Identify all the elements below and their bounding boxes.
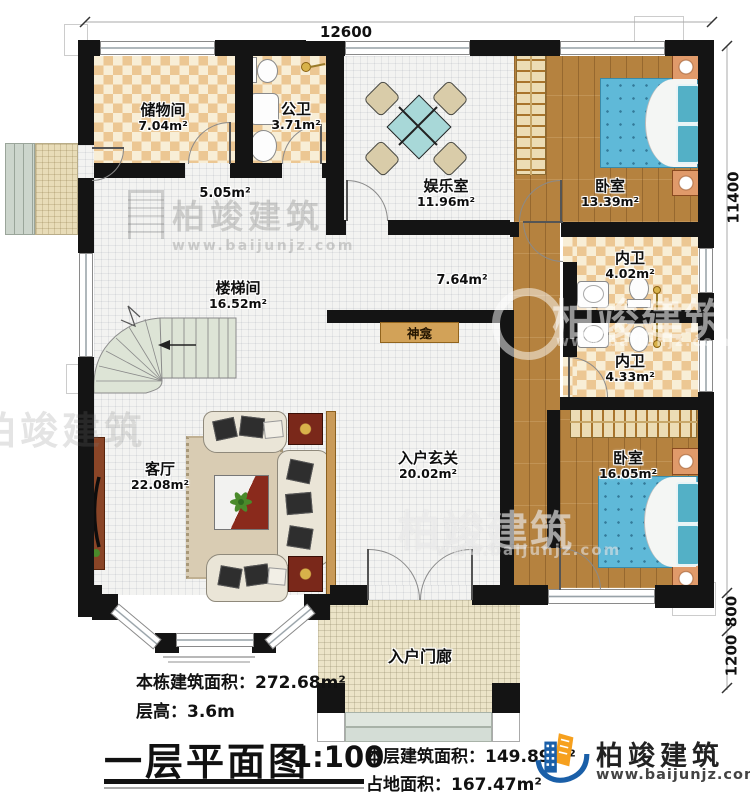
window bbox=[79, 253, 93, 357]
window bbox=[699, 248, 713, 293]
wall-segment bbox=[561, 222, 714, 237]
door-leaf bbox=[568, 357, 570, 397]
wall-segment bbox=[500, 310, 514, 590]
wall-segment bbox=[510, 222, 519, 237]
room-label-entry-porch: 入户门廊 bbox=[388, 648, 452, 666]
sink bbox=[583, 285, 604, 303]
area-label-hallway-mid: 7.64m² bbox=[436, 274, 487, 289]
floor-plan-page: { "plan": { "rooms": { "storage": {"name… bbox=[0, 0, 750, 799]
divider-screen bbox=[326, 411, 336, 595]
nightstand bbox=[672, 54, 700, 80]
sink-counter bbox=[577, 281, 609, 308]
cushion bbox=[212, 417, 238, 441]
sofa-bottom bbox=[206, 554, 288, 602]
plan-title: 一层平面图 bbox=[104, 731, 309, 786]
building-total-area-text: 本栋建筑面积：272.68m² bbox=[136, 668, 346, 693]
wall-segment bbox=[326, 56, 344, 235]
wall-segment bbox=[330, 585, 368, 605]
room-label-ensuite-bottom: 内卫 4.33m² bbox=[605, 353, 654, 384]
wall-segment bbox=[78, 40, 94, 145]
wardrobe-rail bbox=[570, 421, 697, 423]
entry-door-leaf bbox=[367, 549, 369, 600]
brand-url: www.baijunjz.com bbox=[596, 767, 750, 783]
cushion bbox=[267, 567, 286, 586]
wall-segment bbox=[563, 262, 577, 357]
sink bbox=[250, 130, 277, 162]
wardrobe-rail bbox=[530, 49, 532, 175]
room-label-bedroom-top: 卧室 13.39m² bbox=[581, 178, 639, 209]
wall-segment bbox=[547, 410, 560, 548]
bay-window-left bbox=[110, 604, 161, 650]
floor-door-threshold bbox=[563, 237, 577, 262]
nightstand bbox=[672, 170, 700, 196]
wall-segment bbox=[388, 220, 510, 235]
window bbox=[548, 589, 655, 604]
door-leaf bbox=[229, 122, 231, 164]
entry-door-leaf bbox=[471, 549, 473, 600]
toilet-bowl bbox=[629, 326, 649, 352]
sink-counter bbox=[577, 320, 609, 348]
wall-segment bbox=[215, 40, 345, 56]
wall-segment bbox=[330, 220, 346, 235]
cushion bbox=[263, 420, 284, 439]
room-label-public-bath: 公卫 3.71m² bbox=[271, 101, 320, 132]
cushion bbox=[285, 492, 313, 515]
wall-segment bbox=[78, 178, 94, 253]
wall-segment bbox=[78, 357, 94, 585]
dimension-right-total: 11400 bbox=[725, 158, 742, 238]
pillow bbox=[676, 124, 700, 164]
cushion bbox=[239, 416, 265, 439]
pillow bbox=[676, 482, 700, 524]
sofa-right bbox=[277, 450, 330, 566]
toilet-tank bbox=[627, 299, 651, 308]
footprint-area-text: 占地面积：167.47m² bbox=[366, 770, 542, 795]
window bbox=[560, 41, 665, 55]
porch-footing bbox=[492, 712, 520, 742]
bay-window-right bbox=[264, 604, 315, 650]
area-label-hallway-small: 5.05m² bbox=[199, 187, 250, 202]
side-porch-floor bbox=[35, 143, 78, 235]
wall-segment bbox=[230, 163, 282, 178]
shrine-label: 神龛 bbox=[407, 323, 432, 342]
pillow bbox=[676, 84, 700, 124]
room-label-ensuite-top: 内卫 4.02m² bbox=[605, 250, 654, 281]
wall-segment bbox=[698, 40, 714, 248]
porch-step bbox=[345, 712, 492, 727]
shrine-cabinet: 神龛 bbox=[380, 322, 459, 343]
door-leaf bbox=[559, 548, 561, 590]
room-label-entertainment: 娱乐室 11.96m² bbox=[417, 178, 475, 209]
cushion bbox=[217, 565, 242, 589]
cushion bbox=[244, 563, 271, 586]
wall-segment bbox=[560, 397, 714, 410]
window bbox=[345, 41, 470, 55]
room-label-living-room: 客厅 22.08m² bbox=[131, 461, 189, 492]
side-porch-steps bbox=[5, 143, 35, 235]
porch-footing bbox=[317, 712, 345, 742]
room-label-bedroom-bottom: 卧室 16.05m² bbox=[599, 450, 657, 481]
title-underline-thin bbox=[104, 787, 364, 789]
cushion bbox=[286, 459, 314, 485]
floor-height-text: 层高：3.6m bbox=[136, 697, 235, 722]
wall-segment bbox=[235, 56, 253, 163]
side-table bbox=[288, 556, 323, 592]
coffee-table bbox=[214, 475, 269, 530]
door-leaf bbox=[560, 180, 562, 222]
door-leaf bbox=[346, 180, 348, 221]
toilet-bowl bbox=[257, 59, 278, 83]
title-underline bbox=[104, 779, 364, 784]
door-leaf bbox=[92, 147, 124, 149]
window bbox=[100, 41, 215, 55]
porch-column bbox=[492, 683, 520, 713]
room-label-stairwell: 楼梯间 16.52m² bbox=[209, 280, 267, 311]
dimension-right-bottom: 1200 bbox=[723, 628, 740, 684]
cushion bbox=[287, 525, 314, 549]
pillow bbox=[676, 524, 700, 566]
sofa-top bbox=[203, 411, 287, 453]
door-leaf bbox=[523, 221, 563, 223]
bay-window-center bbox=[176, 633, 254, 647]
wall-segment bbox=[698, 392, 714, 608]
wall-segment bbox=[577, 310, 714, 323]
brand-logo-icon bbox=[532, 724, 592, 786]
window bbox=[699, 340, 713, 392]
nightstand bbox=[672, 448, 700, 475]
sink bbox=[583, 325, 604, 343]
wall-segment bbox=[322, 163, 344, 178]
room-label-storage: 储物间 7.04m² bbox=[138, 102, 187, 133]
side-table bbox=[288, 413, 323, 445]
dimension-top: 12600 bbox=[306, 23, 386, 41]
wall-segment bbox=[470, 40, 560, 56]
wall-segment bbox=[655, 585, 714, 608]
room-label-entry-foyer: 入户玄关 20.02m² bbox=[398, 450, 458, 481]
